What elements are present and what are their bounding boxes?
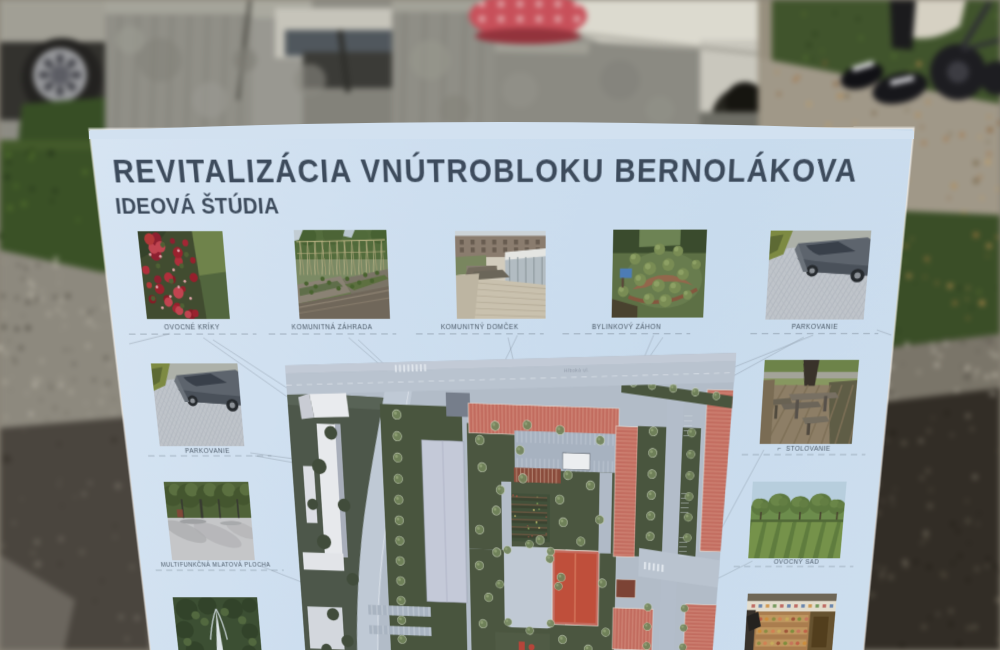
- svg-text:Hlboká ul.: Hlboká ul.: [564, 368, 589, 374]
